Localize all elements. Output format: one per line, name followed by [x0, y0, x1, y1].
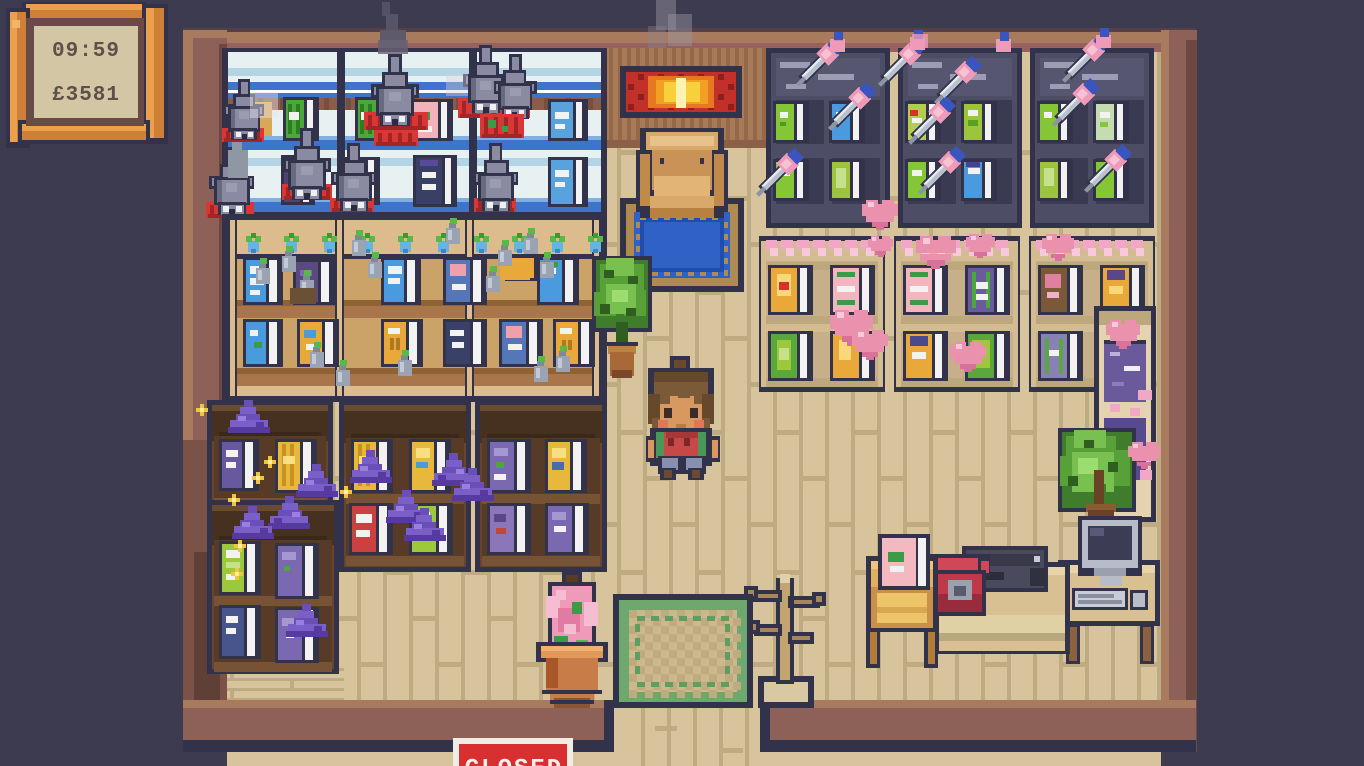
svg-text:CLOSED: CLOSED [465, 756, 563, 766]
svg-text:£3581: £3581 [52, 84, 120, 107]
svg-text:09:59: 09:59 [52, 40, 120, 63]
